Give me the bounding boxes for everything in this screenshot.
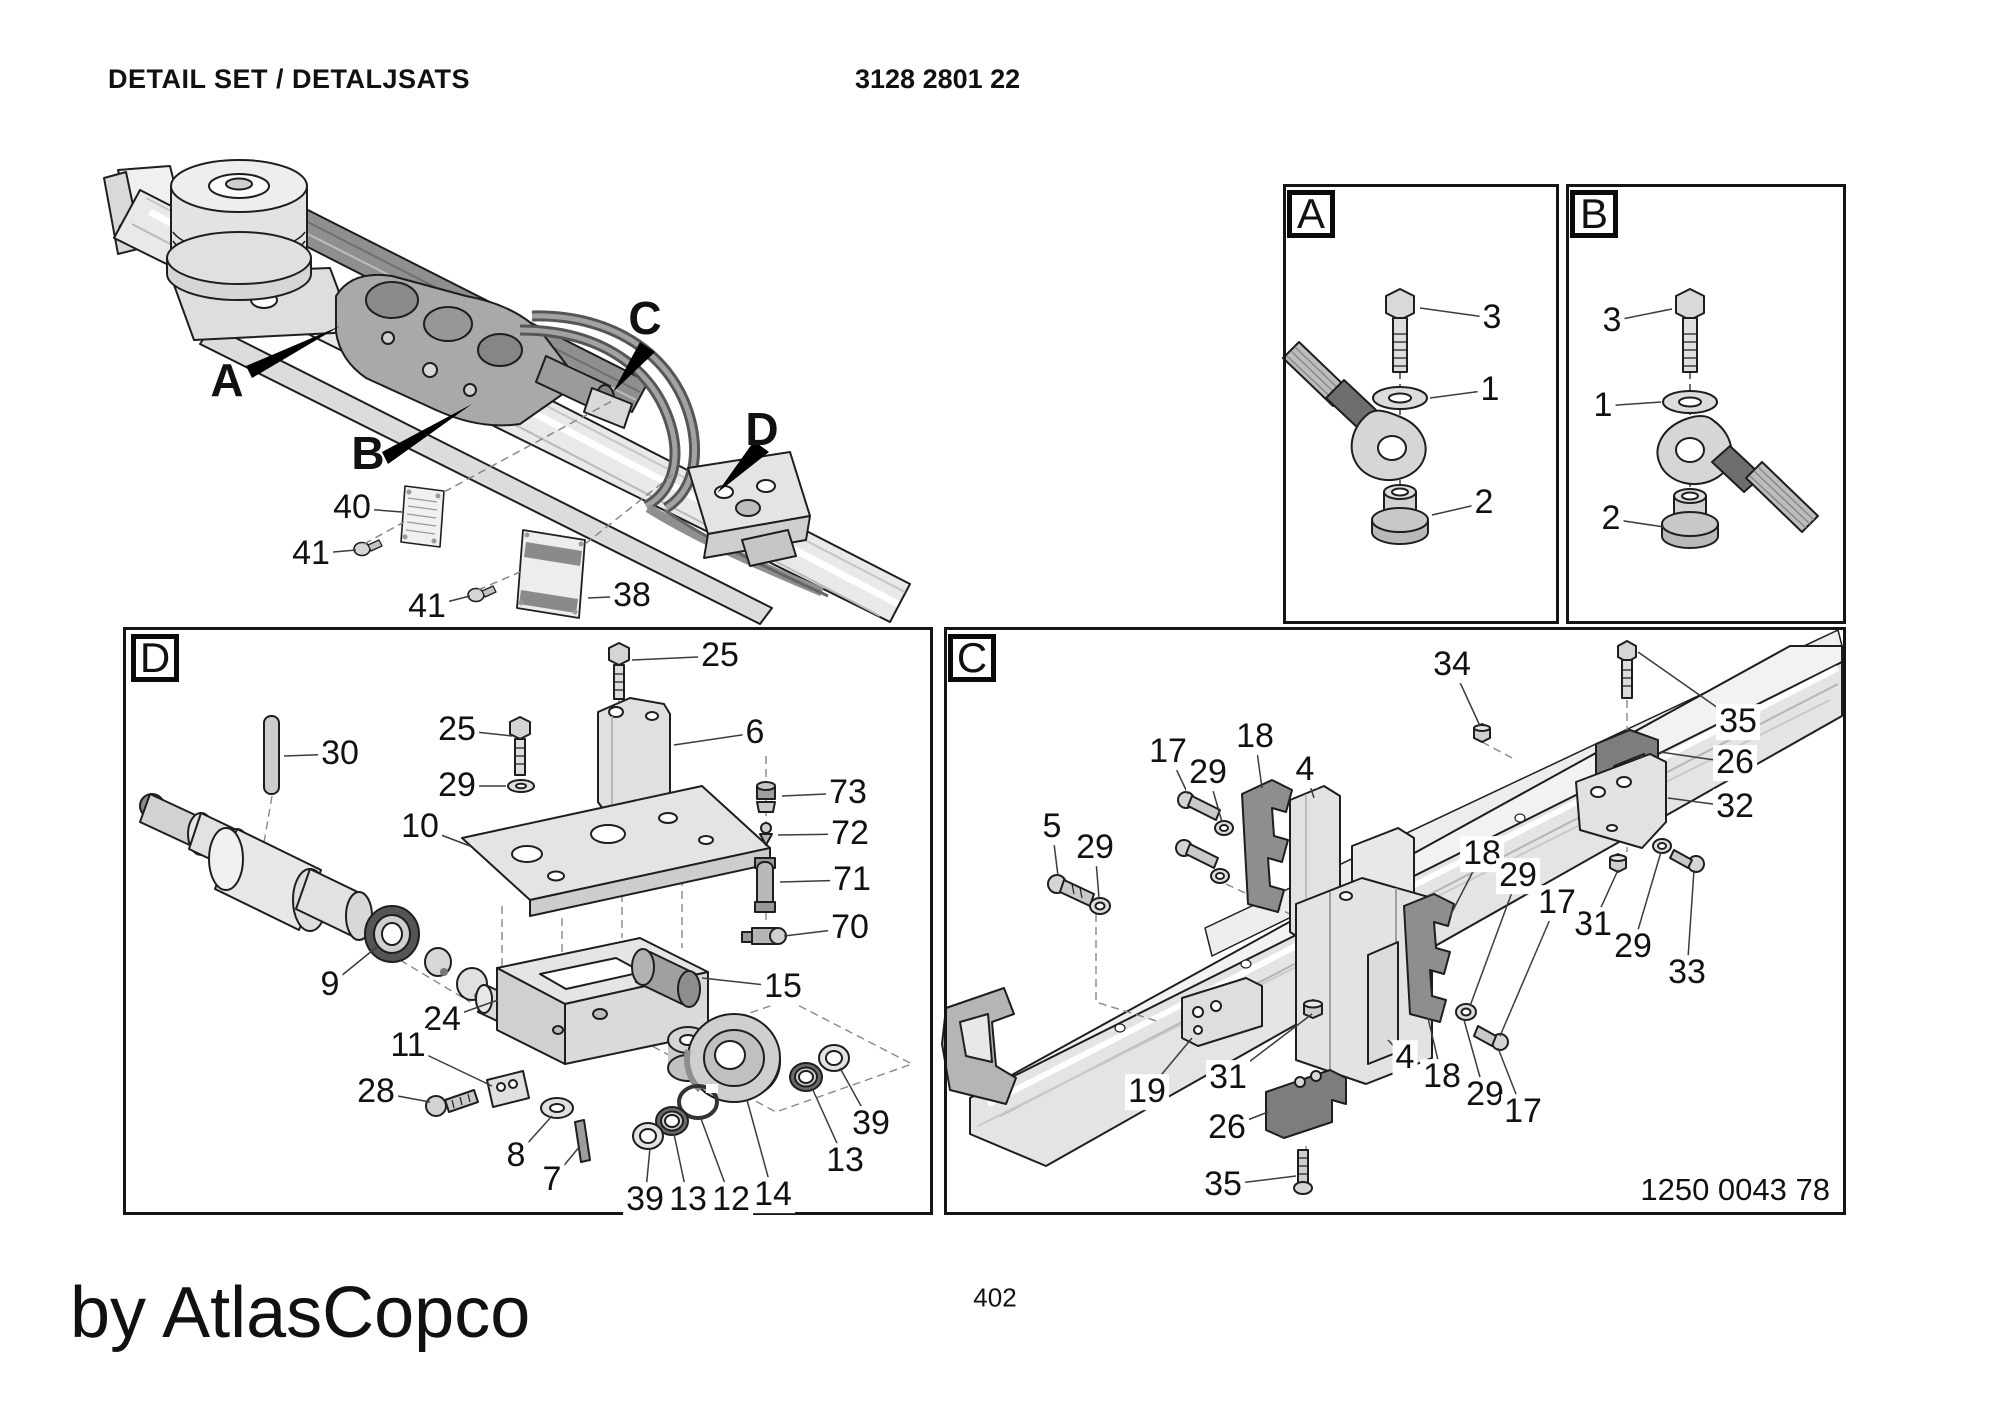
callout-panel_d-71: 71 — [830, 862, 874, 898]
callout-panel_d-7: 7 — [540, 1162, 565, 1198]
callout-panel_d-25: 25 — [435, 712, 479, 748]
callout-panel_c-33: 33 — [1665, 955, 1709, 991]
callout-panel_d-13: 13 — [823, 1143, 867, 1179]
callout-panel_c-5: 5 — [1040, 809, 1065, 845]
callout-panel_d-13: 13 — [666, 1182, 710, 1218]
callout-panel_d-39: 39 — [849, 1106, 893, 1142]
callout-panel_c-19: 19 — [1125, 1074, 1169, 1110]
callout-panel_c-29: 29 — [1073, 830, 1117, 866]
callout-main_view-40: 40 — [330, 490, 374, 526]
callout-panel_b-3: 3 — [1600, 303, 1625, 339]
callout-panel_c-4: 4 — [1393, 1040, 1418, 1076]
callout-panel_a-1: 1 — [1478, 372, 1503, 408]
callout-panel_d-70: 70 — [828, 910, 872, 946]
callout-panel_c-35: 35 — [1716, 704, 1760, 740]
callout-panel_d-9: 9 — [318, 967, 343, 1003]
callout-panel_c-35: 35 — [1201, 1167, 1245, 1203]
callout-panel_a-2: 2 — [1472, 485, 1497, 521]
callout-panel_c-17: 17 — [1501, 1094, 1545, 1130]
callout-panel_d-29: 29 — [435, 768, 479, 804]
callout-panel_c-18: 18 — [1233, 719, 1277, 755]
view-label-A: A — [210, 353, 243, 407]
callout-panel_d-72: 72 — [828, 816, 872, 852]
callout-panel_d-28: 28 — [354, 1074, 398, 1110]
callout-panel_d-6: 6 — [743, 715, 768, 751]
callout-panel_a-3: 3 — [1480, 300, 1505, 336]
callout-panel_d-73: 73 — [826, 775, 870, 811]
callout-panel_c-29: 29 — [1186, 755, 1230, 791]
callout-panel_d-25: 25 — [698, 638, 742, 674]
panel-b-letter-box: B — [1570, 190, 1618, 238]
panel-c-letter-box: C — [948, 634, 996, 682]
panel-a-letter-box: A — [1287, 190, 1335, 238]
callout-panel_c-34: 34 — [1430, 647, 1474, 683]
callout-layer: 4041413831231230252910256737271709241128… — [0, 0, 2000, 1413]
callout-panel_d-11: 11 — [387, 1028, 428, 1064]
callout-panel_c-29: 29 — [1611, 929, 1655, 965]
callout-panel_d-39: 39 — [623, 1182, 667, 1218]
callout-panel_d-15: 15 — [761, 969, 805, 1005]
callout-panel_c-18: 18 — [1420, 1059, 1464, 1095]
callout-panel_d-12: 12 — [709, 1182, 753, 1218]
view-label-C: C — [628, 291, 661, 345]
callout-panel_d-30: 30 — [318, 736, 362, 772]
callout-panel_d-14: 14 — [751, 1177, 795, 1213]
panel-d-letter-box: D — [131, 634, 179, 682]
callout-main_view-41: 41 — [289, 536, 333, 572]
callout-panel_b-1: 1 — [1591, 388, 1616, 424]
view-label-B: B — [351, 426, 384, 480]
callout-main_view-41: 41 — [405, 589, 449, 625]
callout-panel_c-26: 26 — [1713, 745, 1757, 781]
callout-panel_b-2: 2 — [1599, 501, 1624, 537]
panel-d-letter: D — [140, 637, 170, 679]
callout-panel_c-4: 4 — [1293, 752, 1318, 788]
panel-c-letter: C — [957, 637, 987, 679]
panel-b-letter: B — [1580, 193, 1608, 235]
callout-panel_d-8: 8 — [504, 1138, 529, 1174]
panel-a-letter: A — [1297, 193, 1325, 235]
callout-panel_c-31: 31 — [1206, 1060, 1250, 1096]
callout-panel_c-29: 29 — [1496, 858, 1540, 894]
callout-panel_c-32: 32 — [1713, 789, 1757, 825]
callout-panel_c-17: 17 — [1535, 885, 1579, 921]
callout-panel_d-10: 10 — [398, 809, 442, 845]
callout-main_view-38: 38 — [610, 578, 654, 614]
view-label-D: D — [745, 402, 778, 456]
callout-panel_c-17: 17 — [1146, 734, 1190, 770]
callout-panel_c-26: 26 — [1205, 1110, 1249, 1146]
catalog-page: DETAIL SET / DETALJSATS 3128 2801 22 A B… — [0, 0, 2000, 1413]
